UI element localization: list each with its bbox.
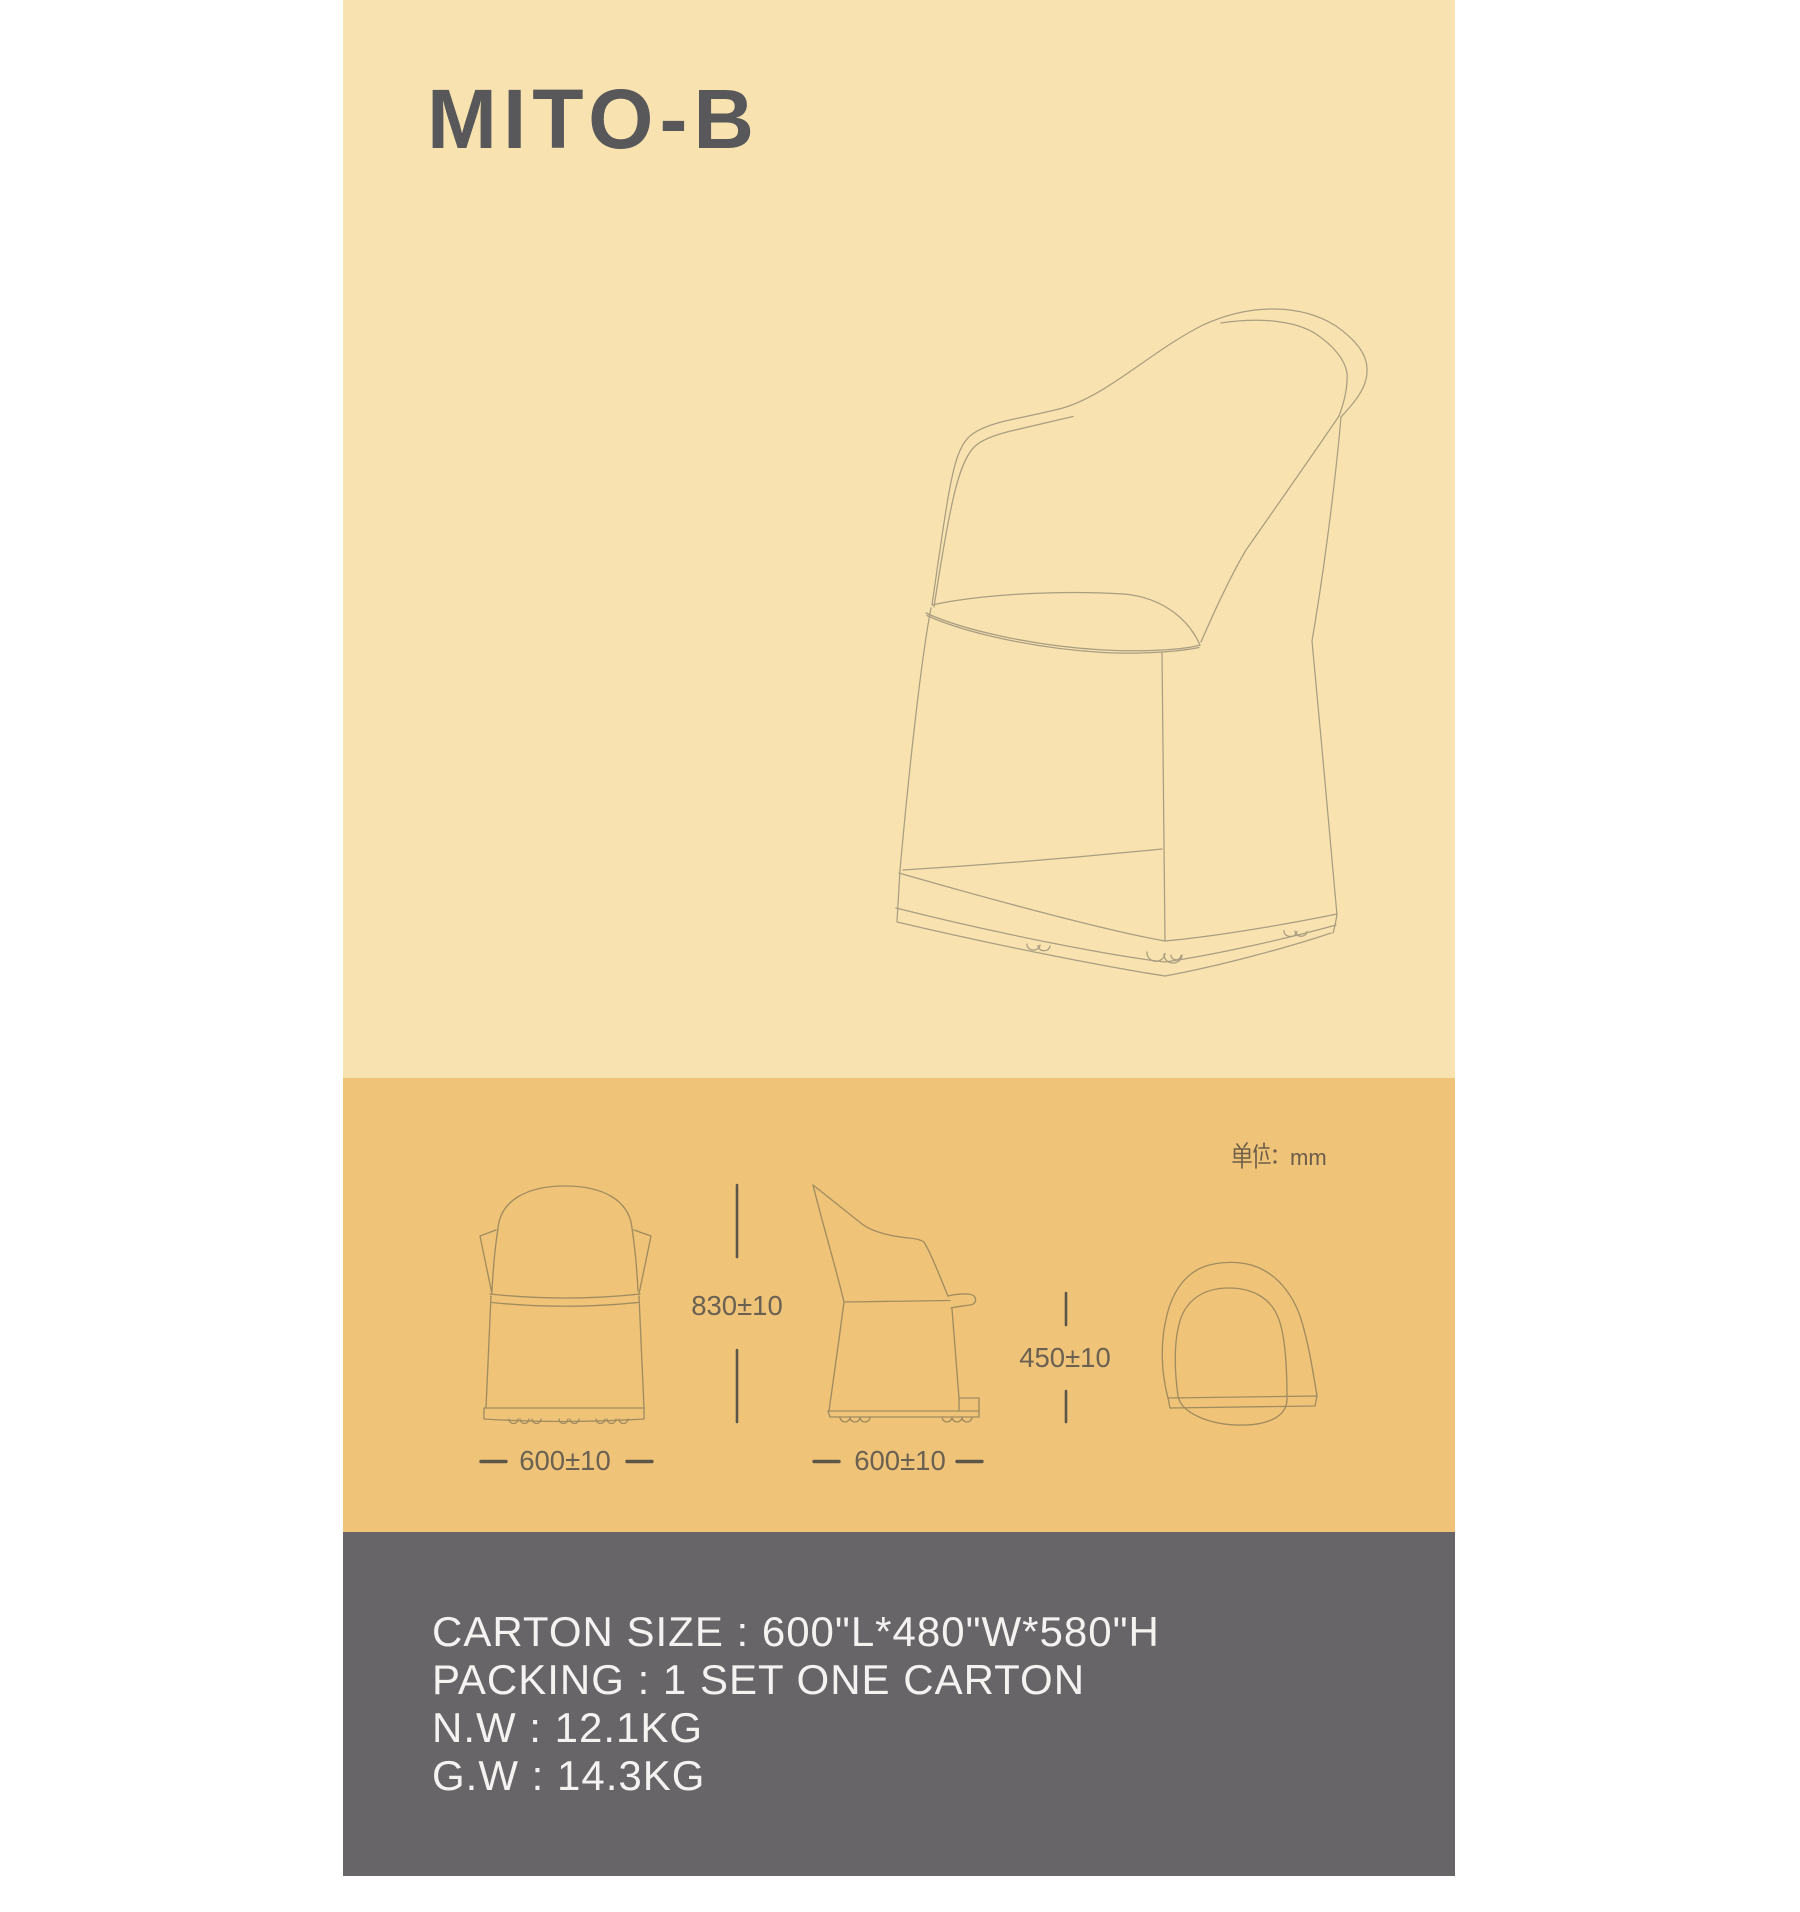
- svg-text:mm: mm: [1290, 1145, 1327, 1170]
